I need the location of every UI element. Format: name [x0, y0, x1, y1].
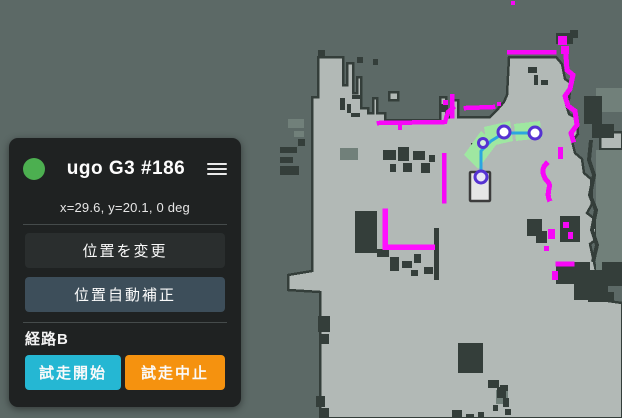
divider [23, 322, 227, 323]
waypoint-marker[interactable] [479, 139, 488, 148]
waypoint-marker[interactable] [498, 126, 510, 138]
waypoint-marker[interactable] [529, 127, 541, 139]
auto-position-correct-button[interactable]: 位置自動補正 [25, 277, 225, 312]
panel-header: ugo G3 #186 [23, 154, 227, 184]
divider [23, 224, 227, 225]
trial-run-start-button[interactable]: 試走開始 [25, 355, 121, 390]
waypoint-marker[interactable] [475, 171, 487, 183]
robot-teleop-screen: { "robot_panel": { "title": "ugo G3 #186… [0, 0, 622, 418]
change-position-button[interactable]: 位置を変更 [25, 233, 225, 268]
online-status-dot-icon [23, 158, 45, 180]
hamburger-menu-icon[interactable] [207, 160, 227, 178]
robot-pose-readout: x=29.6, y=20.1, 0 deg [9, 200, 241, 215]
robot-control-panel: ugo G3 #186 x=29.6, y=20.1, 0 deg 位置を変更 … [9, 138, 241, 407]
robot-title: ugo G3 #186 [45, 158, 207, 180]
route-label: 経路B [25, 328, 69, 349]
trial-run-abort-button[interactable]: 試走中止 [125, 355, 225, 390]
